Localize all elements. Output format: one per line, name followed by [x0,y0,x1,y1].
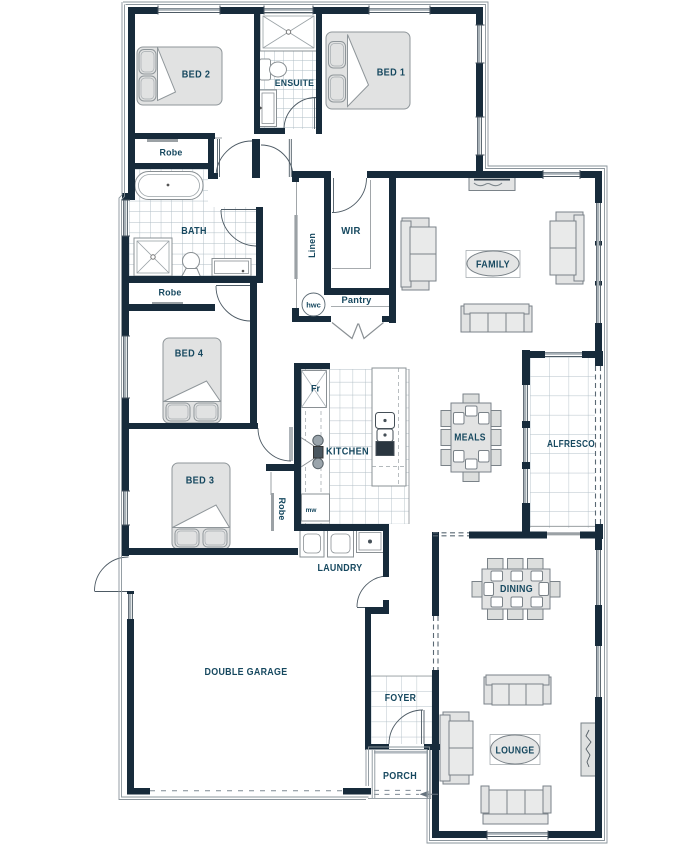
svg-text:BATH: BATH [181,226,207,237]
svg-text:Robe: Robe [159,288,182,298]
svg-text:FAMILY: FAMILY [476,260,510,271]
svg-text:WIR: WIR [341,226,361,237]
svg-text:DOUBLE GARAGE: DOUBLE GARAGE [205,667,288,678]
svg-text:mw: mw [306,507,318,514]
svg-text:ALFRESCO: ALFRESCO [547,439,595,450]
svg-text:hwc: hwc [306,301,321,310]
svg-text:BED 1: BED 1 [377,68,406,79]
svg-text:BED 2: BED 2 [182,70,211,81]
svg-text:Robe: Robe [160,148,183,158]
svg-text:FOYER: FOYER [385,693,417,704]
svg-text:Fr: Fr [311,384,320,394]
svg-text:Pantry: Pantry [342,295,372,305]
svg-text:KITCHEN: KITCHEN [326,447,369,458]
svg-text:PORCH: PORCH [383,771,417,782]
svg-text:LOUNGE: LOUNGE [496,746,535,757]
svg-text:BED 3: BED 3 [186,476,215,487]
svg-text:LAUNDRY: LAUNDRY [318,563,363,574]
svg-text:Robe: Robe [277,498,287,521]
svg-text:Linen: Linen [307,233,317,258]
svg-text:DINING: DINING [500,584,533,595]
svg-text:BED 4: BED 4 [175,349,204,360]
svg-text:ENSUITE: ENSUITE [275,78,315,89]
svg-text:MEALS: MEALS [454,433,486,444]
